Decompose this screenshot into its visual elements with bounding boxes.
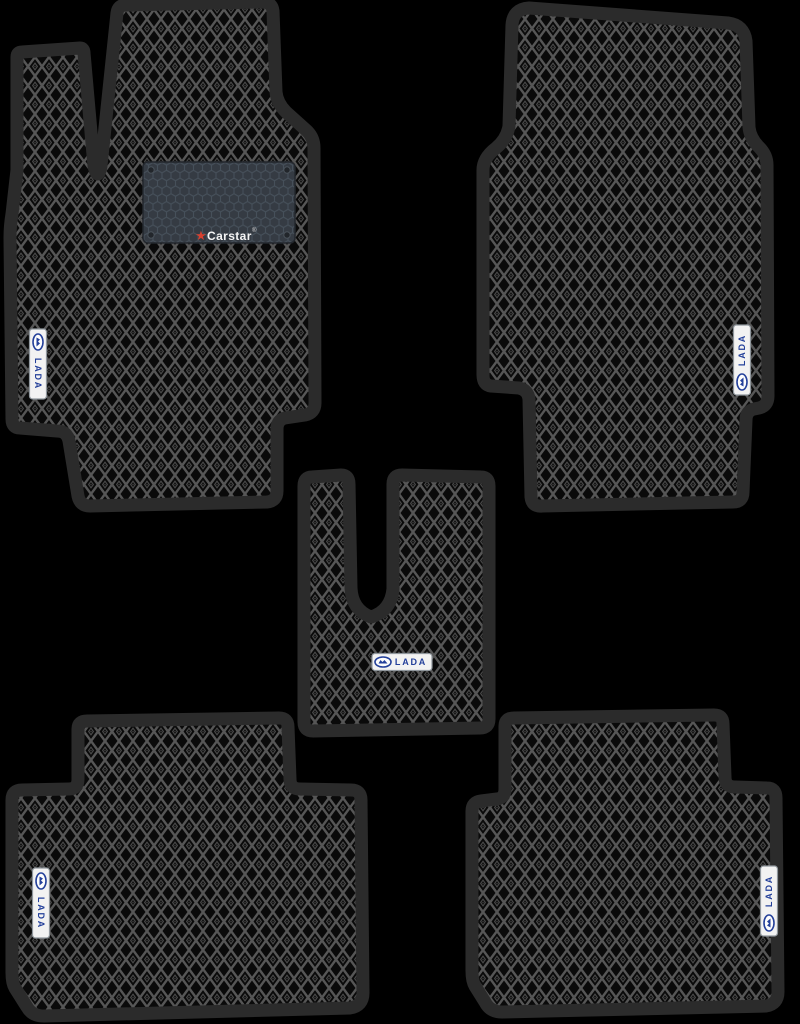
lada-badge-text: LADA	[395, 657, 427, 667]
mat-front-driver-shape	[10, 2, 315, 506]
mat-front-driver: ★ Carstar ® LADA	[10, 2, 315, 506]
floor-mats-product-image: ★ Carstar ® LADA LADA LADA	[0, 0, 800, 1024]
carstar-star-icon: ★	[195, 228, 207, 243]
rivet-top-right-icon	[284, 167, 290, 173]
heel-pad: ★ Carstar ®	[143, 162, 295, 243]
lada-badge: LADA	[734, 325, 751, 395]
lada-badge: LADA	[30, 329, 47, 399]
rivet-top-left-icon	[148, 167, 154, 173]
lada-badge: LADA	[372, 654, 432, 671]
mat-front-passenger-shape	[483, 8, 768, 506]
mat-front-passenger: LADA	[483, 8, 768, 506]
mat-center-tunnel-shape	[304, 475, 489, 731]
rivet-bottom-left-icon	[148, 232, 154, 238]
lada-badge-text: LADA	[737, 334, 747, 366]
lada-badge-text: LADA	[764, 875, 774, 907]
mat-center-tunnel: LADA	[304, 475, 489, 731]
lada-badge-text: LADA	[36, 897, 46, 929]
carstar-brand-text: Carstar	[207, 229, 252, 243]
rivet-bottom-right-icon	[284, 232, 290, 238]
lada-badge: LADA	[33, 868, 50, 938]
lada-badge: LADA	[761, 866, 778, 936]
lada-badge-text: LADA	[33, 358, 43, 390]
registered-trademark-symbol: ®	[252, 227, 257, 234]
